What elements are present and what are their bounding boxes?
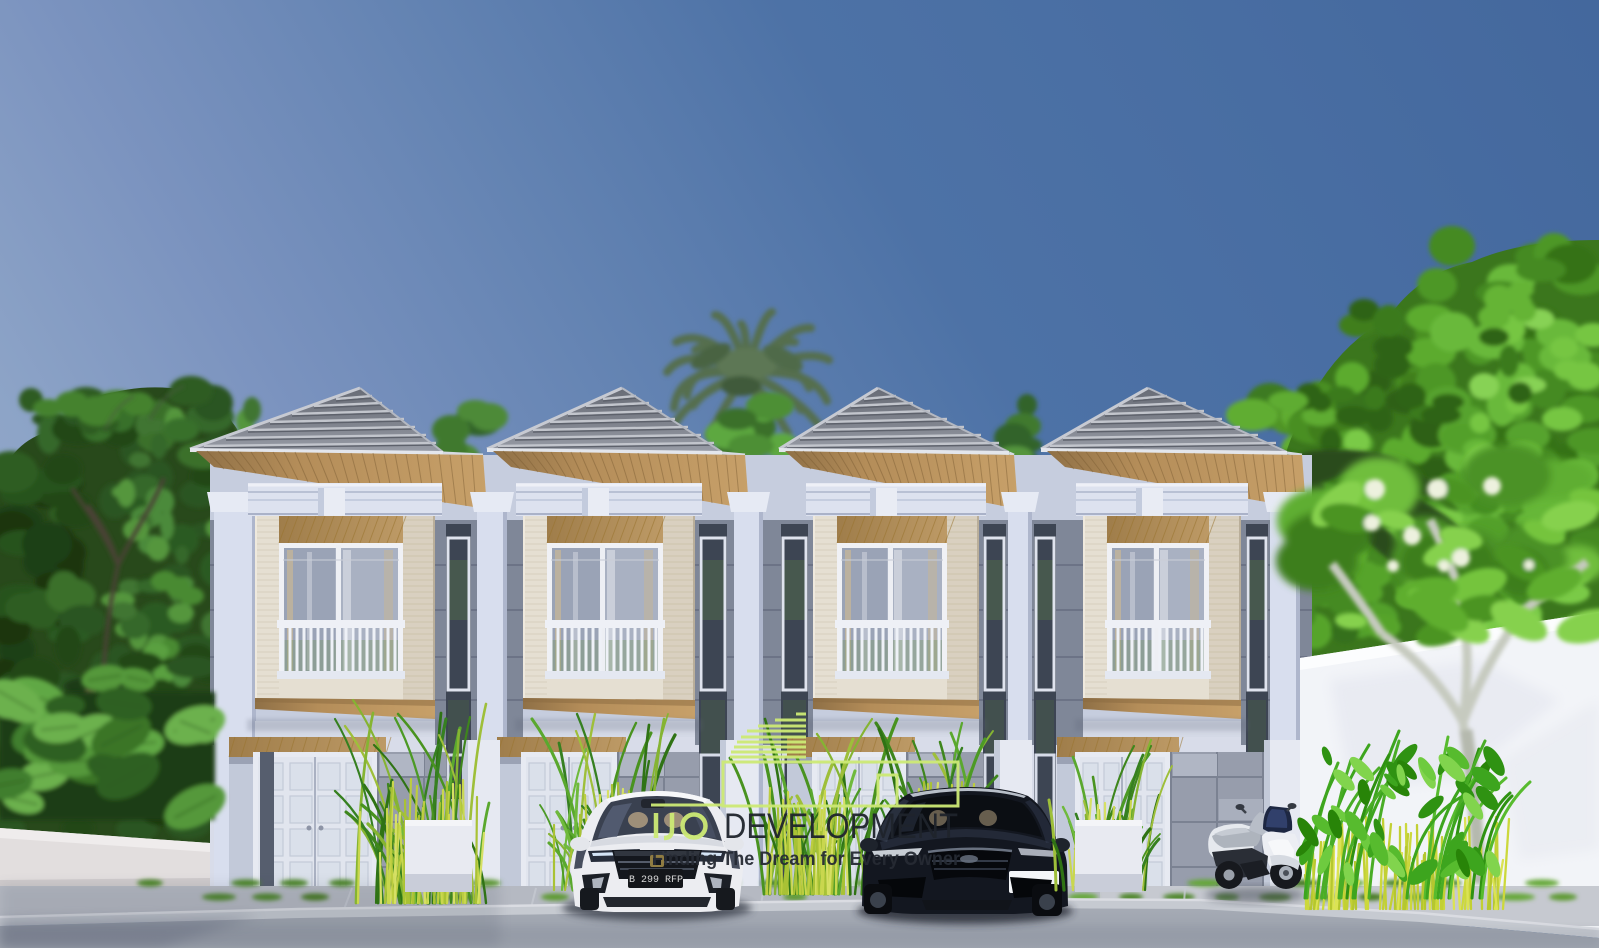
svg-text:Finding The Dream for Every Ow: Finding The Dream for Every Owner [652, 849, 961, 870]
svg-text:B 299 RFP: B 299 RFP [629, 875, 683, 886]
svg-text:DEVELOPMENT: DEVELOPMENT [724, 807, 958, 846]
